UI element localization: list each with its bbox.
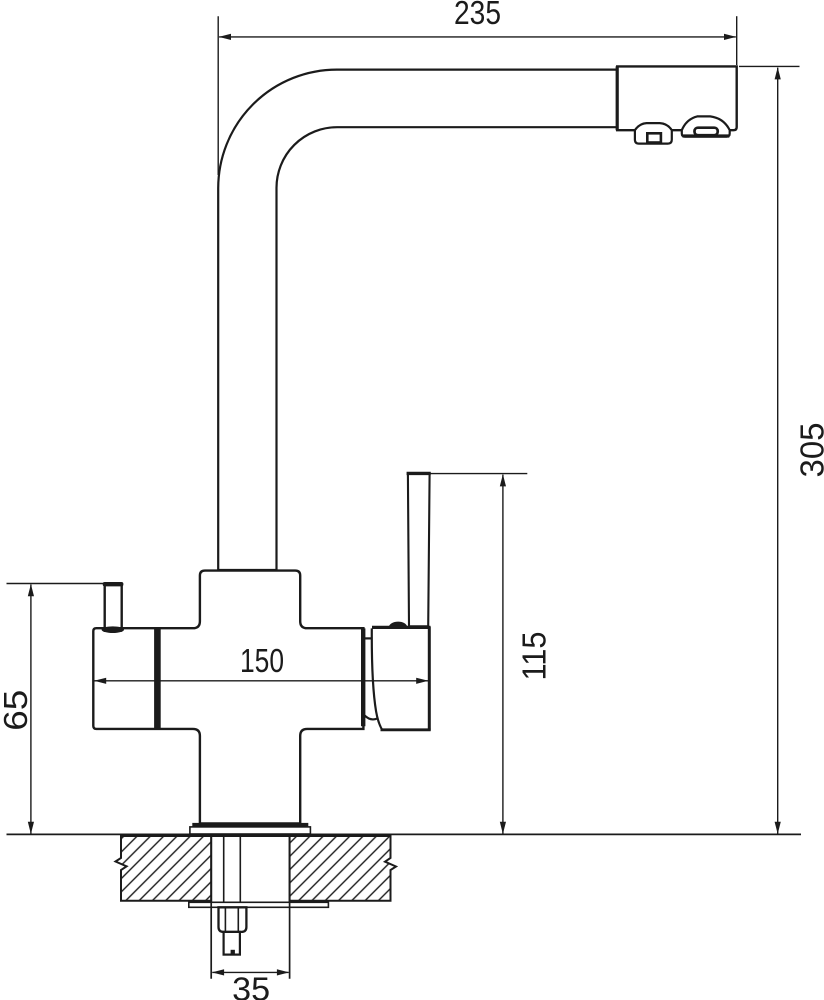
- svg-text:65: 65: [0, 690, 34, 731]
- svg-text:235: 235: [454, 0, 501, 31]
- svg-text:35: 35: [232, 970, 270, 1000]
- svg-text:305: 305: [794, 423, 824, 478]
- svg-text:150: 150: [240, 642, 284, 679]
- svg-text:115: 115: [515, 632, 552, 681]
